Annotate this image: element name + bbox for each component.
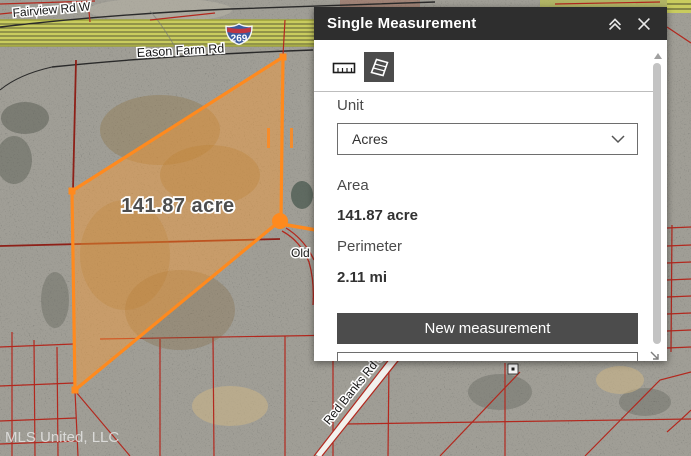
- close-icon: [635, 15, 653, 33]
- scrollbar-thumb[interactable]: [653, 63, 661, 344]
- close-button[interactable]: [633, 13, 655, 35]
- unit-label: Unit: [337, 97, 364, 114]
- structure-marker: [508, 364, 518, 374]
- polygon-vertex[interactable]: [280, 54, 287, 61]
- app-window: 269 Fairview Rd W Eason Farm Rd Old Red …: [0, 0, 691, 456]
- distance-measure-button[interactable]: [330, 53, 358, 81]
- area-label: Area: [337, 177, 369, 194]
- chevron-down-icon: [611, 135, 625, 144]
- panel-resize-handle[interactable]: [648, 348, 661, 361]
- ruler-icon: [332, 55, 356, 79]
- unit-select-value: Acres: [352, 131, 388, 147]
- collapse-button[interactable]: [604, 13, 626, 35]
- panel-header: Single Measurement: [314, 7, 667, 40]
- new-measurement-button[interactable]: New measurement: [337, 313, 638, 344]
- map-area-label: 141.87 acre: [121, 195, 234, 217]
- measurement-panel: Single Measurement: [314, 7, 667, 361]
- area-measure-icon: [367, 55, 391, 79]
- perimeter-value: 2.11 mi: [337, 269, 387, 286]
- polygon-vertex[interactable]: [69, 188, 76, 195]
- polygon-active-vertex[interactable]: [272, 213, 288, 229]
- panel-title: Single Measurement: [327, 15, 476, 32]
- scrollbar-up-arrow[interactable]: [654, 53, 662, 59]
- chevron-double-up-icon: [605, 14, 625, 34]
- clipped-bottom-button[interactable]: [337, 352, 638, 361]
- area-value: 141.87 acre: [337, 207, 418, 224]
- toolbar-divider: [314, 91, 655, 92]
- road-label-old: Old: [291, 246, 310, 260]
- polygon-vertex[interactable]: [72, 387, 79, 394]
- area-measure-button[interactable]: [364, 52, 394, 82]
- resize-icon: [648, 348, 661, 361]
- interstate-shield-number: 269: [231, 34, 248, 45]
- unit-select[interactable]: Acres: [337, 123, 638, 155]
- measure-toolbar: [330, 52, 394, 82]
- watermark: MLS United, LLC: [5, 429, 119, 446]
- perimeter-label: Perimeter: [337, 238, 402, 255]
